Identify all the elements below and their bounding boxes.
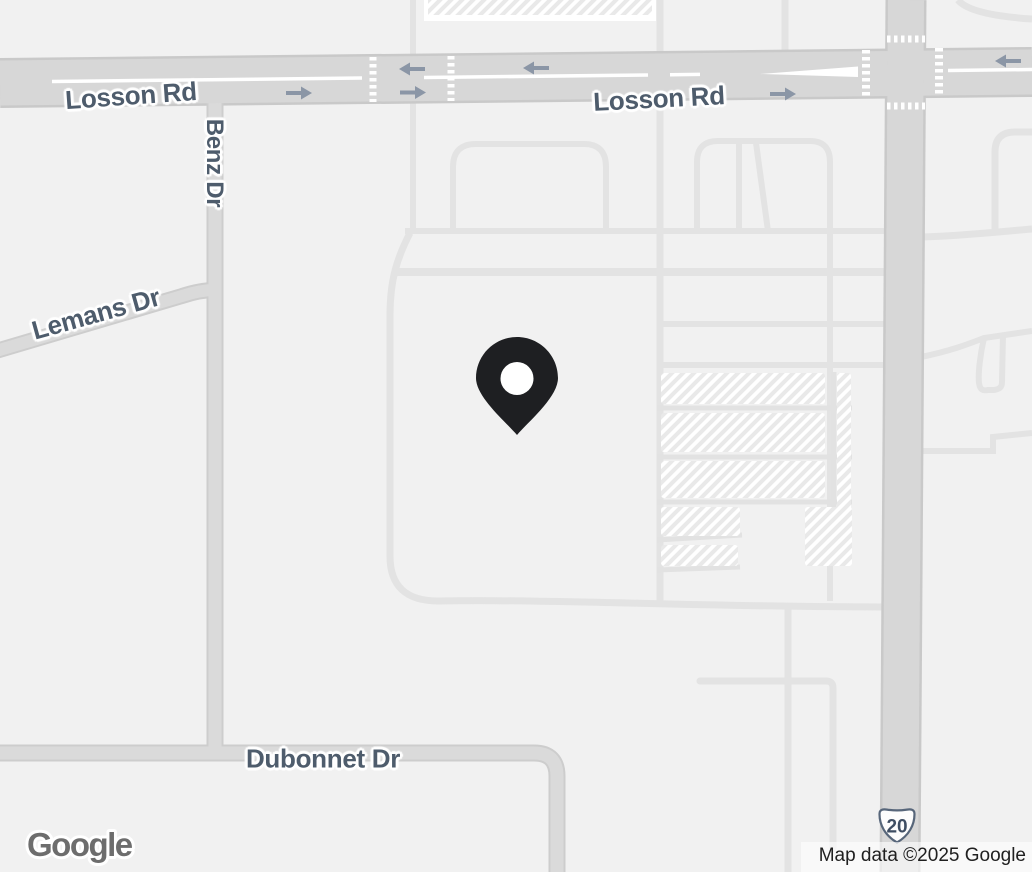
- map-graphics: 20 Google: [0, 0, 1032, 872]
- route-shield-number: 20: [886, 817, 907, 838]
- road-label-benz-dr: Benz Dr: [200, 119, 228, 208]
- road-us-20: [900, 0, 906, 872]
- road-label-dubonnet-dr: Dubonnet Dr: [246, 744, 400, 775]
- map-attribution: Map data ©2025 Google: [801, 842, 1032, 872]
- map-canvas[interactable]: 20 Google Losson Rd Losson Rd Benz Dr Le…: [0, 0, 1032, 872]
- google-logo[interactable]: Google: [27, 826, 133, 863]
- map-background: [0, 0, 1032, 872]
